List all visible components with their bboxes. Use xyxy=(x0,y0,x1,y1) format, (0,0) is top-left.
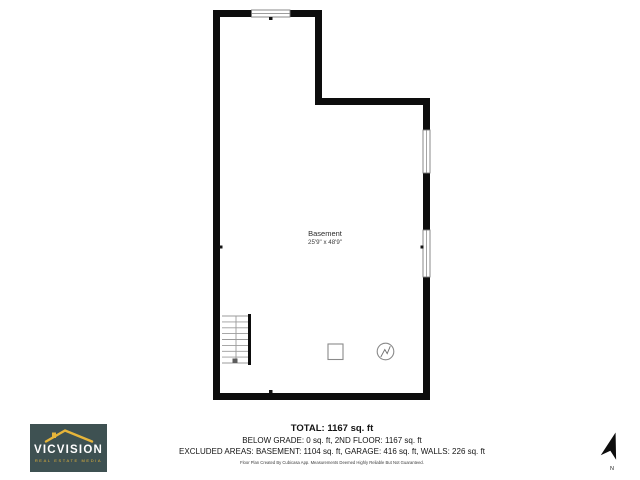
window-right-lower xyxy=(423,230,430,277)
vicvision-logo: VICVISION REAL ESTATE MEDIA xyxy=(30,424,107,472)
area-summary: TOTAL: 1167 sq. ft BELOW GRADE: 0 sq. ft… xyxy=(25,423,639,467)
wall-bottom xyxy=(213,393,430,400)
north-indicator: N xyxy=(598,431,626,471)
roof-icon xyxy=(41,427,97,443)
floorplan-page: Basement 25'9" x 48'9" TOTAL: 1167 sq. f… xyxy=(0,0,640,480)
grade-area-text: BELOW GRADE: 0 sq. ft, 2ND FLOOR: 1167 s… xyxy=(25,435,639,446)
water-heater-icon xyxy=(377,343,394,360)
wall-left xyxy=(213,10,220,400)
logo-name: VICVISION xyxy=(34,444,103,457)
room-label: Basement 25'9" x 48'9" xyxy=(245,229,405,247)
wall-step-horizontal xyxy=(315,98,430,105)
wall-upper-right-vertical xyxy=(315,10,322,105)
north-label: N xyxy=(598,466,626,472)
stairs-start-marker xyxy=(233,359,238,364)
logo-tagline: REAL ESTATE MEDIA xyxy=(35,458,102,464)
window-right-upper xyxy=(423,130,430,173)
stairs-stringer xyxy=(248,314,251,365)
north-arrow-icon xyxy=(598,431,626,463)
stairs-icon xyxy=(222,314,251,365)
total-area-text: TOTAL: 1167 sq. ft xyxy=(25,423,639,435)
room-dimensions: 25'9" x 48'9" xyxy=(245,239,405,247)
excluded-area-text: EXCLUDED AREAS: BASEMENT: 1104 sq. ft, G… xyxy=(25,446,639,457)
window-top xyxy=(252,10,291,17)
room-name: Basement xyxy=(245,229,405,239)
disclaimer-text: Floor Plan Created By Cubicasa App. Meas… xyxy=(25,459,639,467)
square-fixture-icon xyxy=(328,344,343,360)
walls xyxy=(213,10,430,400)
